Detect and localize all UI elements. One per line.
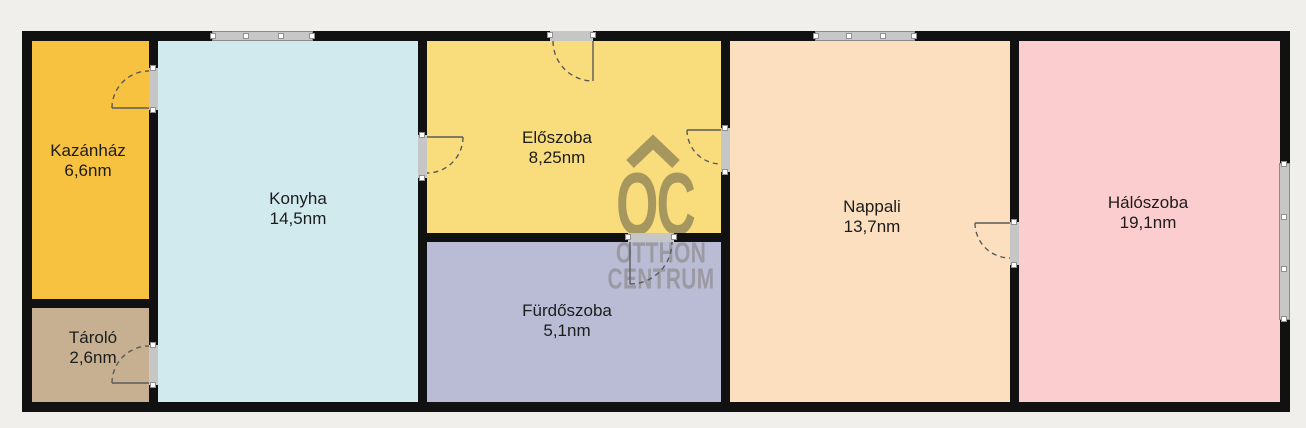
room-area: 6,6nm — [50, 161, 126, 181]
room-area: 13,7nm — [843, 217, 901, 237]
room-name: Hálószoba — [1108, 193, 1188, 213]
room-name: Kazánház — [50, 141, 126, 161]
window-konyha-icon — [212, 31, 313, 41]
room-label-tarolo: Tároló 2,6nm — [69, 328, 117, 368]
outer-wall — [22, 31, 1290, 412]
door-kazanhaz-icon — [149, 68, 158, 110]
room-area: 14,5nm — [269, 209, 327, 229]
door-tarolo-icon — [149, 345, 158, 385]
room-label-haloszoba: Hálószoba 19,1nm — [1108, 193, 1188, 233]
wall-kazanhaz-tarolo — [32, 299, 149, 308]
door-konyha-eloszoba-icon — [418, 135, 427, 178]
door-eloszoba-nappali-icon — [721, 128, 730, 172]
wall-konyha-eloszoba — [418, 41, 427, 402]
room-area: 5,1nm — [522, 321, 612, 341]
room-area: 8,25nm — [522, 148, 592, 168]
floorplan-canvas: OC OTTHON CENTRUM — [0, 0, 1306, 428]
door-haloszoba-icon — [1010, 222, 1019, 265]
room-area: 2,6nm — [69, 348, 117, 368]
room-label-eloszoba: Előszoba 8,25nm — [522, 128, 592, 168]
room-label-nappali: Nappali 13,7nm — [843, 197, 901, 237]
room-area: 19,1nm — [1108, 213, 1188, 233]
window-nappali-icon — [815, 31, 915, 41]
room-name: Nappali — [843, 197, 901, 217]
room-label-kazanhaz: Kazánház 6,6nm — [50, 141, 126, 181]
room-name: Előszoba — [522, 128, 592, 148]
door-furdoszoba-icon — [628, 233, 674, 242]
door-entrance-icon — [550, 31, 593, 41]
room-name: Tároló — [69, 328, 117, 348]
room-name: Fürdőszoba — [522, 301, 612, 321]
room-label-konyha: Konyha 14,5nm — [269, 189, 327, 229]
room-label-furdoszoba: Fürdőszoba 5,1nm — [522, 301, 612, 341]
wall-eloszoba-nappali — [721, 41, 730, 402]
window-haloszoba-icon — [1279, 163, 1290, 320]
room-name: Konyha — [269, 189, 327, 209]
